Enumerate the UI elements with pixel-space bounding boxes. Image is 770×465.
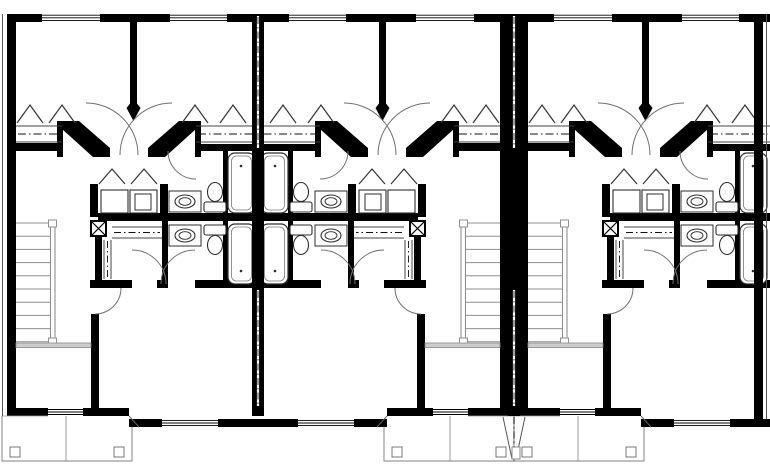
floor-plan-canvas <box>0 0 770 465</box>
sink-vanity <box>681 191 713 212</box>
bathtub <box>261 153 288 213</box>
shaft-x-box <box>603 221 618 236</box>
sink-vanity <box>315 225 347 246</box>
floor-plan-svg <box>0 0 770 465</box>
sink-vanity <box>169 225 201 246</box>
sink-vanity <box>169 191 201 212</box>
sink-vanity <box>315 191 347 212</box>
bathtub <box>228 224 255 284</box>
bathtub <box>228 153 255 213</box>
sink-vanity <box>681 225 713 246</box>
bathtub <box>261 224 288 284</box>
shaft-x-box <box>410 221 425 236</box>
party-wall-1 <box>252 14 264 416</box>
shaft-x-box <box>91 221 106 236</box>
